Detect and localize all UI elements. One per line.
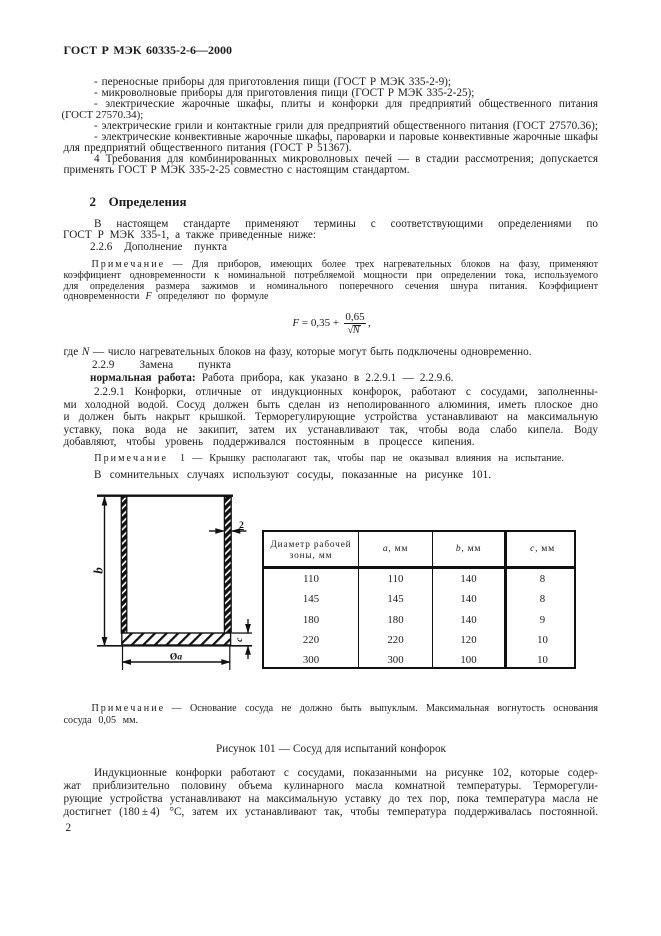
svg-text:Øa: Øa (170, 653, 182, 663)
svg-text:2: 2 (239, 521, 244, 531)
svg-text:b: b (91, 567, 106, 574)
svg-text:c: c (235, 637, 245, 642)
